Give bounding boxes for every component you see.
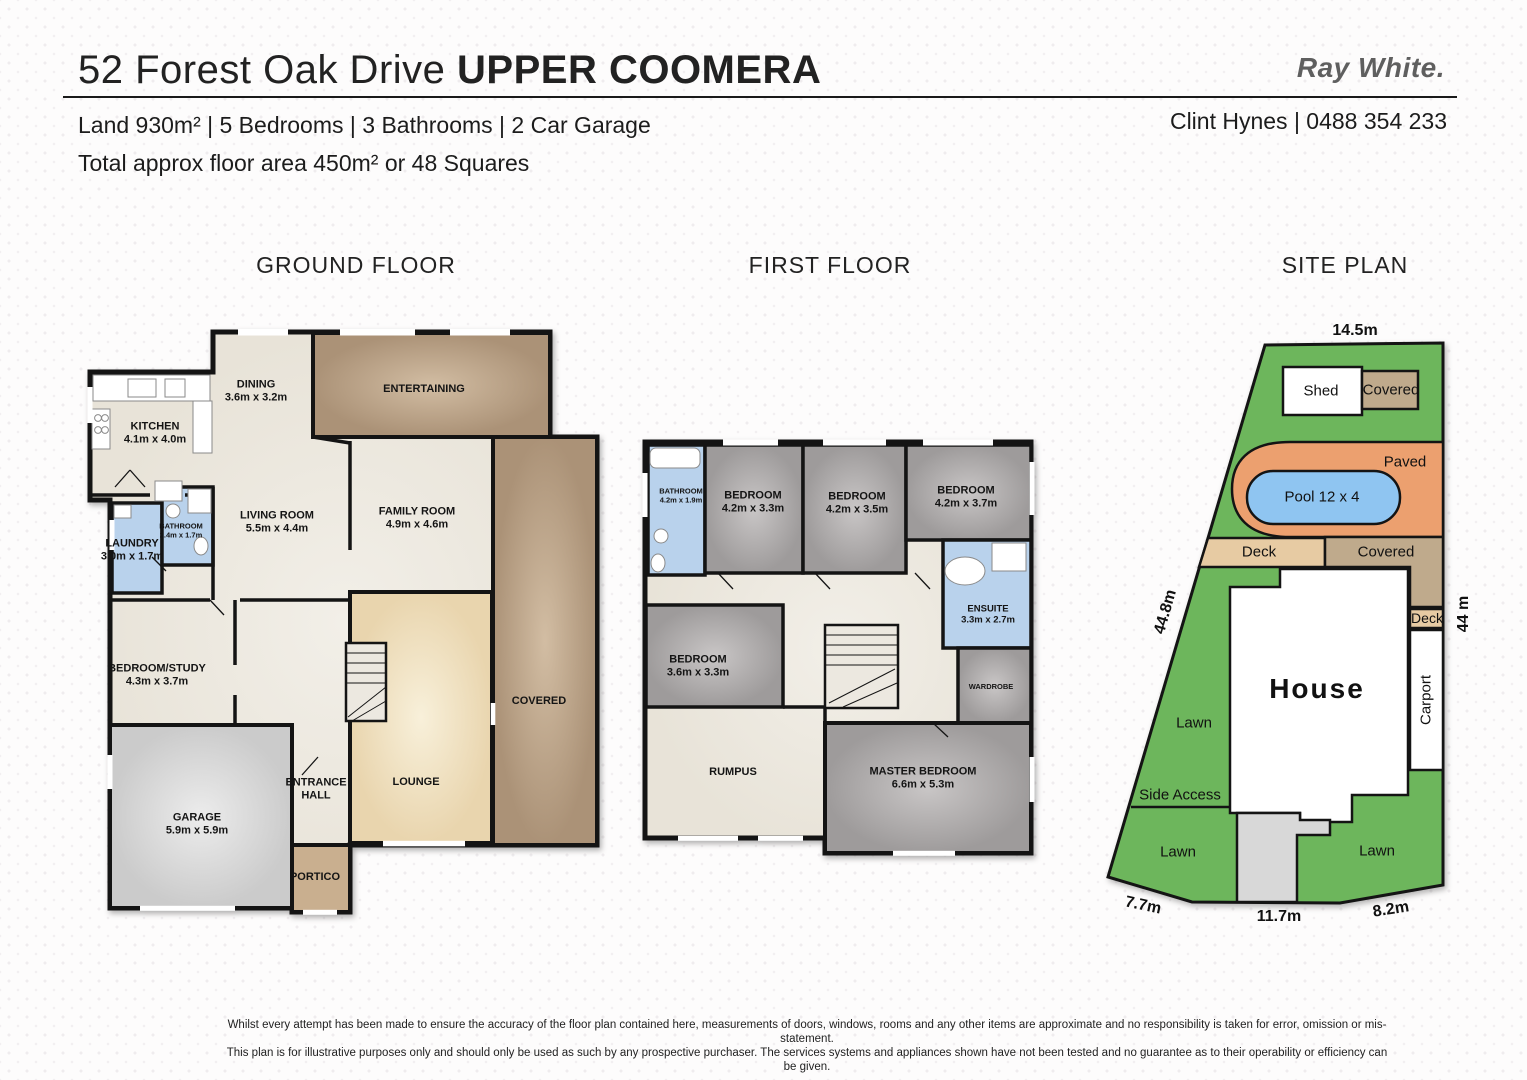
site-label-pool: Pool 12 x 4 — [1284, 489, 1359, 506]
room-label-lounge: LOUNGE — [392, 776, 439, 789]
room-label-wardrobe: WARDROBE — [969, 683, 1014, 692]
disclaimer-line-2: This plan is for illustrative purposes o… — [222, 1046, 1392, 1074]
gf-stairs — [346, 643, 386, 721]
room-label-master-bedroom: MASTER BEDROOM6.6m x 5.3m — [870, 766, 977, 791]
section-title-site-plan: SITE PLAN — [1282, 252, 1409, 279]
site-label-shed: Shed — [1303, 383, 1338, 400]
room-label-family-room: FAMILY ROOM4.9m x 4.6m — [379, 506, 455, 531]
room-label-bedroom-1: BEDROOM4.2m x 3.3m — [722, 490, 784, 515]
section-title-ground-floor: GROUND FLOOR — [256, 252, 456, 279]
site-label-deck-small: Deck — [1411, 610, 1443, 626]
disclaimer: Whilst every attempt has been made to en… — [222, 1018, 1392, 1074]
site-dim-right: 44 m — [1455, 596, 1473, 632]
ground-floor-plan — [85, 325, 600, 920]
room-label-covered-gf: COVERED — [512, 695, 566, 708]
room-label-portico: PORTICO — [290, 871, 340, 884]
room-label-bathroom-gf: BATHROOM2.4m x 1.7m — [159, 523, 203, 540]
disclaimer-line-1: Whilst every attempt has been made to en… — [222, 1018, 1392, 1046]
land-summary: Land 930m² | 5 Bedrooms | 3 Bathrooms | … — [78, 112, 651, 139]
ray-white-logo: Ray White. — [1297, 52, 1445, 84]
site-dim-bottom-center: 11.7m — [1257, 908, 1301, 926]
room-label-ensuite: ENSUITE3.3m x 2.7m — [961, 605, 1015, 626]
section-title-first-floor: FIRST FLOOR — [749, 252, 912, 279]
room-label-laundry: LAUNDRY3.0m x 1.7m — [101, 538, 163, 563]
ff-stairs — [825, 625, 898, 708]
room-label-entrance-hall: ENTRANCE HALL — [274, 777, 358, 802]
site-label-side-access: Side Access — [1139, 787, 1221, 804]
room-label-kitchen: KITCHEN4.1m x 4.0m — [124, 421, 186, 446]
site-label-covered-mid: Covered — [1358, 544, 1415, 561]
room-label-dining: DINING3.6m x 3.2m — [225, 379, 287, 404]
room-label-bedroom-4: BEDROOM3.6m x 3.3m — [667, 654, 729, 679]
room-label-garage: GARAGE5.9m x 5.9m — [166, 812, 228, 837]
header-divider — [63, 96, 1457, 98]
site-label-deck: Deck — [1242, 544, 1276, 561]
page-title: 52 Forest Oak Drive UPPER COOMERA — [78, 48, 821, 92]
floor-area-summary: Total approx floor area 450m² or 48 Squa… — [78, 150, 529, 177]
room-label-bedroom-study: BEDROOM/STUDY4.3m x 3.7m — [108, 663, 206, 688]
suburb-text: UPPER COOMERA — [457, 48, 821, 92]
site-label-lawn-bottom-right: Lawn — [1359, 843, 1395, 860]
room-label-bedroom-3: BEDROOM4.2m x 3.7m — [935, 485, 997, 510]
gf-covered-area — [493, 437, 597, 845]
site-label-house: House — [1269, 673, 1365, 705]
room-label-living-room: LIVING ROOM5.5m x 4.4m — [240, 510, 314, 535]
room-label-rumpus: RUMPUS — [709, 766, 757, 779]
site-label-paved: Paved — [1384, 454, 1427, 471]
site-dim-top: 14.5m — [1332, 322, 1377, 340]
room-label-bedroom-2: BEDROOM4.2m x 3.5m — [826, 491, 888, 516]
address-text: 52 Forest Oak Drive — [78, 48, 445, 92]
floorplan-flyer: 52 Forest Oak Drive UPPER COOMERA Ray Wh… — [0, 0, 1527, 1080]
site-label-covered-top: Covered — [1363, 382, 1420, 399]
site-label-lawn-bottom-left: Lawn — [1160, 844, 1196, 861]
agent-contact: Clint Hynes | 0488 354 233 — [1170, 108, 1447, 135]
room-label-entertaining: ENTERTAINING — [383, 383, 465, 396]
site-label-lawn-left: Lawn — [1176, 715, 1212, 732]
site-label-carport: Carport — [1418, 675, 1435, 725]
room-label-bathroom-ff: BATHROOM4.2m x 1.9m — [659, 488, 703, 505]
